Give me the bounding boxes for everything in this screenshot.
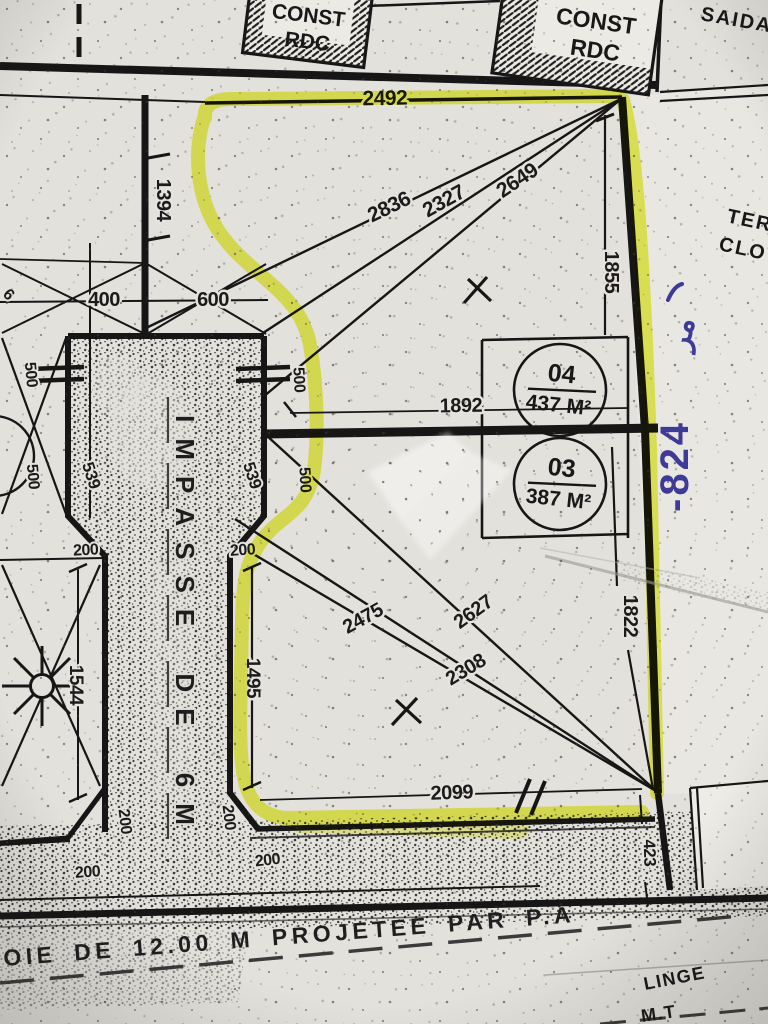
photo-vignette [0,0,768,1024]
cadastral-plan-scan: 04 437 M² 03 387 M² CONST RDC CONST RDC … [0,0,768,1024]
plan-drawing: 04 437 M² 03 387 M² CONST RDC CONST RDC … [0,0,768,1024]
